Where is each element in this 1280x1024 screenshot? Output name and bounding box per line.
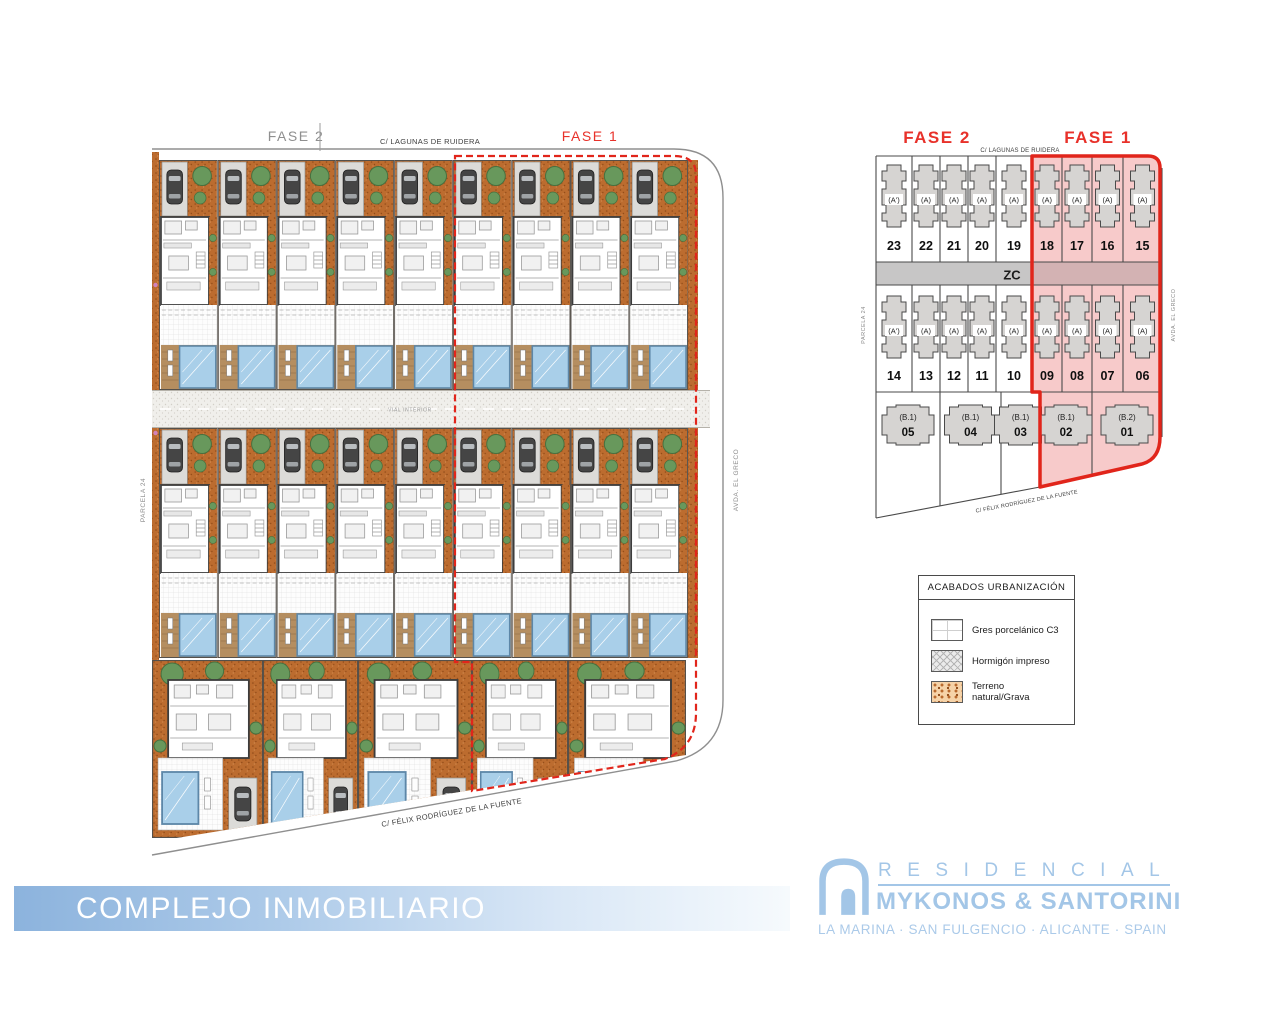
- legend-label: Terreno natural/Grava: [972, 681, 1064, 703]
- diagram-street-right: AVDA. EL GRECO: [1171, 288, 1177, 341]
- diagram-street-bottom: C/ FÉLIX RODRÍGUEZ DE LA FUENTE: [975, 488, 1078, 514]
- svg-text:03: 03: [1014, 427, 1027, 439]
- svg-text:(B.1): (B.1): [1057, 413, 1075, 422]
- legend: ACABADOS URBANIZACIÓN Gres porcelánico C…: [918, 575, 1075, 725]
- svg-text:(B.2): (B.2): [1118, 413, 1136, 422]
- fase2-label-diagram: FASE 2: [903, 128, 971, 147]
- brochure-page: FASE 2 C/ LAGUNAS DE RUIDERA FASE 1 VIAL…: [0, 0, 1280, 1024]
- legend-item-terreno: Terreno natural/Grava: [931, 681, 1064, 703]
- legend-title: ACABADOS URBANIZACIÓN: [919, 576, 1074, 600]
- brand-residencial: RESIDENCIAL: [878, 860, 1175, 882]
- footer-banner: COMPLEJO INMOBILIARIO: [14, 886, 790, 931]
- hatch-swatch: [931, 650, 963, 672]
- svg-text:10: 10: [1007, 369, 1021, 383]
- svg-text:(A): (A): [921, 196, 932, 205]
- plot-13: (A)13: [914, 296, 938, 383]
- plot-19: (A)19: [1002, 165, 1026, 253]
- svg-text:17: 17: [1070, 239, 1084, 253]
- svg-text:(A'): (A'): [888, 327, 900, 336]
- plot-10: (A)10: [1002, 296, 1026, 383]
- dome-icon: [816, 854, 872, 916]
- plot-14: (A')14: [882, 296, 906, 383]
- street-right-label: AVDA. EL GRECO: [733, 449, 740, 512]
- fase1-label-plan: FASE 1: [562, 128, 618, 144]
- site-plan: FASE 2 C/ LAGUNAS DE RUIDERA FASE 1 VIAL…: [140, 115, 760, 875]
- legend-label: Gres porcelánico C3: [972, 625, 1059, 636]
- svg-text:(A): (A): [949, 196, 960, 205]
- plot-23: (A')23: [882, 165, 906, 253]
- svg-text:(A'): (A'): [888, 196, 900, 205]
- diagram-parcel-left: PARCELA 24: [861, 306, 867, 344]
- plot-12: (A)12: [942, 296, 966, 383]
- svg-text:13: 13: [919, 369, 933, 383]
- brand-name: MYKONOS & SANTORINI: [876, 888, 1181, 916]
- interior-road: VIAL INTERIOR: [152, 390, 710, 428]
- svg-text:(A): (A): [977, 196, 988, 205]
- svg-text:22: 22: [919, 239, 933, 253]
- svg-text:02: 02: [1060, 427, 1073, 439]
- svg-text:12: 12: [947, 369, 961, 383]
- svg-text:(A): (A): [1042, 327, 1053, 336]
- interior-road-label: VIAL INTERIOR: [388, 408, 432, 414]
- plot-diagram: FASE 2 FASE 1 C/ LAGUNAS DE RUIDERA ZC (…: [855, 115, 1185, 535]
- parcel-left-label: PARCELA 24: [140, 478, 147, 523]
- svg-text:14: 14: [887, 369, 901, 383]
- svg-text:(A): (A): [1009, 327, 1020, 336]
- svg-text:(A): (A): [1103, 327, 1114, 336]
- svg-text:05: 05: [902, 427, 915, 439]
- banner-title: COMPLEJO INMOBILIARIO: [14, 892, 486, 926]
- svg-text:(B.1): (B.1): [962, 413, 980, 422]
- svg-text:19: 19: [1007, 239, 1021, 253]
- brand-rule: [878, 884, 1170, 886]
- svg-text:01: 01: [1121, 427, 1134, 439]
- svg-text:21: 21: [947, 239, 961, 253]
- svg-text:(A): (A): [949, 327, 960, 336]
- svg-text:(A): (A): [977, 327, 988, 336]
- svg-text:(A): (A): [1042, 196, 1053, 205]
- diagram-street-top: C/ LAGUNAS DE RUIDERA: [980, 148, 1059, 154]
- svg-text:09: 09: [1040, 369, 1054, 383]
- svg-text:06: 06: [1136, 369, 1150, 383]
- street-top-label: C/ LAGUNAS DE RUIDERA: [380, 137, 480, 146]
- svg-text:(A): (A): [1103, 196, 1114, 205]
- plot-02: (B.1)02: [1040, 405, 1092, 445]
- svg-text:(A): (A): [1072, 196, 1083, 205]
- svg-text:07: 07: [1101, 369, 1115, 383]
- legend-item-hormigon: Hormigón impreso: [931, 650, 1064, 672]
- tile-swatch: [931, 619, 963, 641]
- plot-05: (B.1)05: [882, 405, 934, 445]
- plot-20: (A)20: [970, 165, 994, 253]
- plot-21: (A)21: [942, 165, 966, 253]
- gravel-swatch: [931, 681, 963, 703]
- villa-units: [153, 661, 686, 838]
- svg-text:04: 04: [964, 427, 977, 439]
- svg-text:(A): (A): [1138, 196, 1149, 205]
- svg-text:08: 08: [1070, 369, 1084, 383]
- brand-location: LA MARINA · SAN FULGENCIO · ALICANTE · S…: [818, 922, 1167, 937]
- plot-11: (A)11: [970, 296, 994, 383]
- svg-text:20: 20: [975, 239, 989, 253]
- fase1-label-diagram: FASE 1: [1064, 128, 1132, 147]
- legend-label: Hormigón impreso: [972, 656, 1050, 667]
- fase2-label-plan: FASE 2: [268, 128, 324, 144]
- svg-text:16: 16: [1101, 239, 1115, 253]
- svg-text:18: 18: [1040, 239, 1054, 253]
- svg-text:(A): (A): [1138, 327, 1149, 336]
- legend-item-gres: Gres porcelánico C3: [931, 619, 1064, 641]
- svg-text:23: 23: [887, 239, 901, 253]
- svg-text:(B.1): (B.1): [899, 413, 917, 422]
- svg-text:11: 11: [975, 369, 988, 383]
- plot-01: (B.2)01: [1101, 405, 1153, 445]
- svg-text:15: 15: [1136, 239, 1150, 253]
- zc-label: ZC: [1003, 268, 1021, 283]
- svg-text:(A): (A): [921, 327, 932, 336]
- svg-text:(A): (A): [1072, 327, 1083, 336]
- plot-22: (A)22: [914, 165, 938, 253]
- svg-text:(A): (A): [1009, 196, 1020, 205]
- svg-text:(B.1): (B.1): [1012, 413, 1030, 422]
- plot-04: (B.1)04: [945, 405, 997, 445]
- zc-band-fase1: [1032, 262, 1160, 285]
- brand-block: RESIDENCIAL MYKONOS & SANTORINI LA MARIN…: [810, 850, 1190, 950]
